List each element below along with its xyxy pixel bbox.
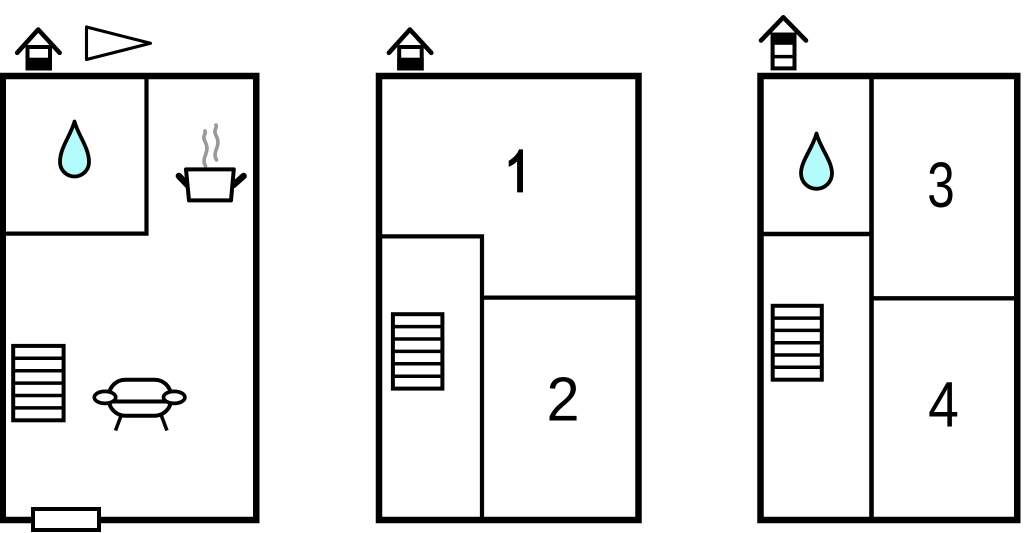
svg-text:2: 2: [546, 364, 579, 434]
svg-text:4: 4: [928, 369, 959, 441]
svg-text:3: 3: [927, 150, 954, 222]
